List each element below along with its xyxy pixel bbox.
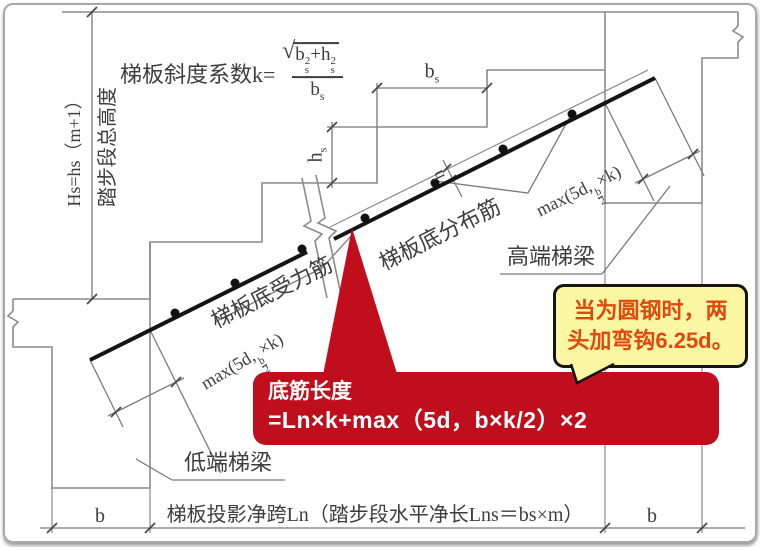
yellow-note-tail [0, 0, 760, 547]
stair-rebar-diagram: 梯板斜度系数k= √ b2s+h2s bs Hs=hs（m+1） 踏步段总高度 … [0, 0, 760, 547]
